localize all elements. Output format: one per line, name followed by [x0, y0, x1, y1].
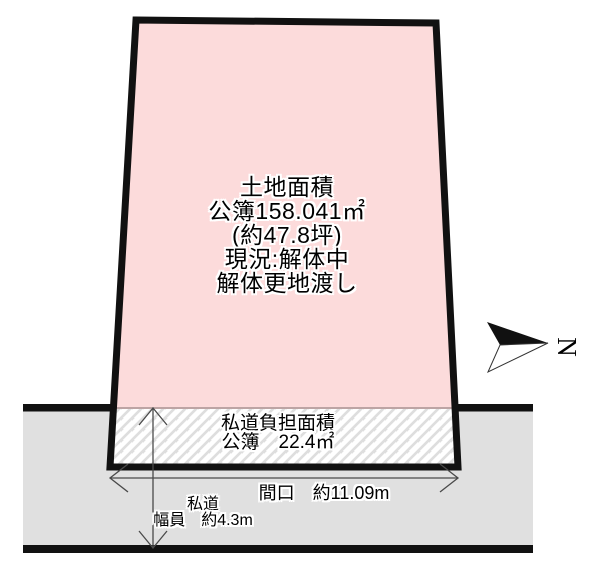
- road-width-value: 幅員 約4.3m: [153, 513, 253, 529]
- land-area-title: 土地面積: [208, 175, 365, 199]
- land-delivery-condition: 解体更地渡し: [208, 271, 365, 295]
- road-width-label: 私道 幅員 約4.3m: [153, 497, 253, 529]
- north-arrow-icon: N: [487, 322, 582, 372]
- land-area-registered: 公簿158.041㎡: [208, 199, 365, 223]
- land-plot-diagram: N 土地面積 公簿158.041㎡ (約47.8坪) 現況:解体中 解体更地渡し…: [0, 0, 600, 576]
- north-label: N: [552, 337, 582, 357]
- road-name: 私道: [153, 497, 253, 513]
- road-top-edge-left: [23, 404, 119, 412]
- private-road-burden-text: 私道負担面積 公簿 22.4㎡: [221, 414, 335, 452]
- frontage-label: 間口 約11.09m: [259, 483, 390, 503]
- road-top-edge-right: [451, 404, 533, 412]
- private-road-burden-area: 公簿 22.4㎡: [221, 433, 335, 452]
- plot-area-text: 土地面積 公簿158.041㎡ (約47.8坪) 現況:解体中 解体更地渡し: [208, 175, 365, 295]
- land-current-status: 現況:解体中: [208, 247, 365, 271]
- land-area-tsubo: (約47.8坪): [208, 223, 365, 247]
- road-bottom-edge: [23, 545, 533, 553]
- private-road-burden-title: 私道負担面積: [221, 414, 335, 433]
